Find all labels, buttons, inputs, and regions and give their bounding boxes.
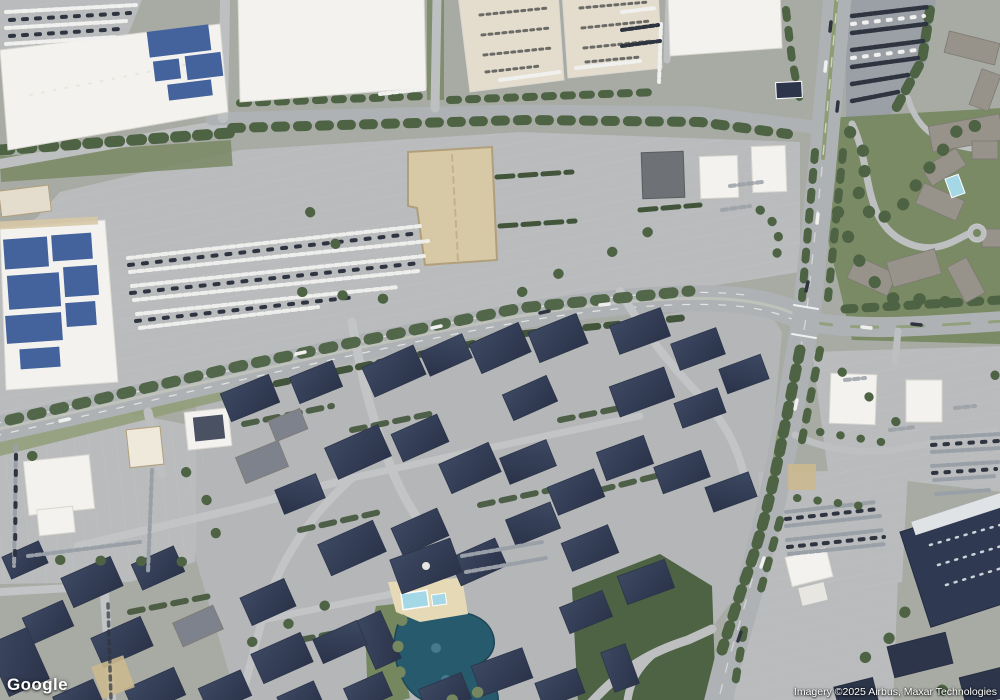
pad-building-white [751, 145, 787, 192]
satellite-map-canvas[interactable]: Google Imagery ©2025 Airbus, Maxar Techn… [0, 0, 1000, 700]
office-building [23, 455, 94, 516]
map-feature-layer [0, 0, 1000, 700]
solar-panel-array [19, 347, 60, 370]
solar-roof-small-building [776, 81, 803, 98]
apartment-building [972, 141, 998, 159]
solar-panel-array [185, 52, 224, 80]
solar-panel-array [7, 272, 61, 310]
pad-building-dark [641, 151, 685, 198]
alley-warehouse-2 [435, 0, 437, 108]
map-attribution: Imagery ©2025 Airbus, Maxar Technologies [794, 686, 997, 698]
driveway-east [895, 331, 898, 362]
east-commercial-building [906, 380, 942, 422]
pond-fountain [431, 643, 441, 653]
warehouse-roof-d [668, 0, 782, 56]
google-logo[interactable]: Google [7, 675, 68, 695]
bank-roof-center [193, 414, 225, 441]
tan-patch [788, 464, 816, 490]
map-imagery [0, 0, 1000, 700]
solar-panel-array [3, 237, 49, 270]
office-building-wing [37, 506, 76, 536]
clubhouse-cupola [422, 562, 430, 570]
tan-outbuilding-west [0, 185, 51, 217]
pad-building-beige [126, 426, 164, 467]
community-pool-small [431, 593, 446, 606]
solar-panel-array [153, 58, 181, 81]
community-pool [401, 590, 429, 609]
warehouse-roof-b [238, 0, 426, 102]
solar-panel-array [5, 312, 63, 344]
solar-panel-array [51, 233, 93, 262]
roundabout-island [973, 229, 981, 237]
solar-panel-array [65, 301, 97, 327]
pad-building-white [699, 155, 738, 198]
solar-panel-array [63, 265, 99, 297]
